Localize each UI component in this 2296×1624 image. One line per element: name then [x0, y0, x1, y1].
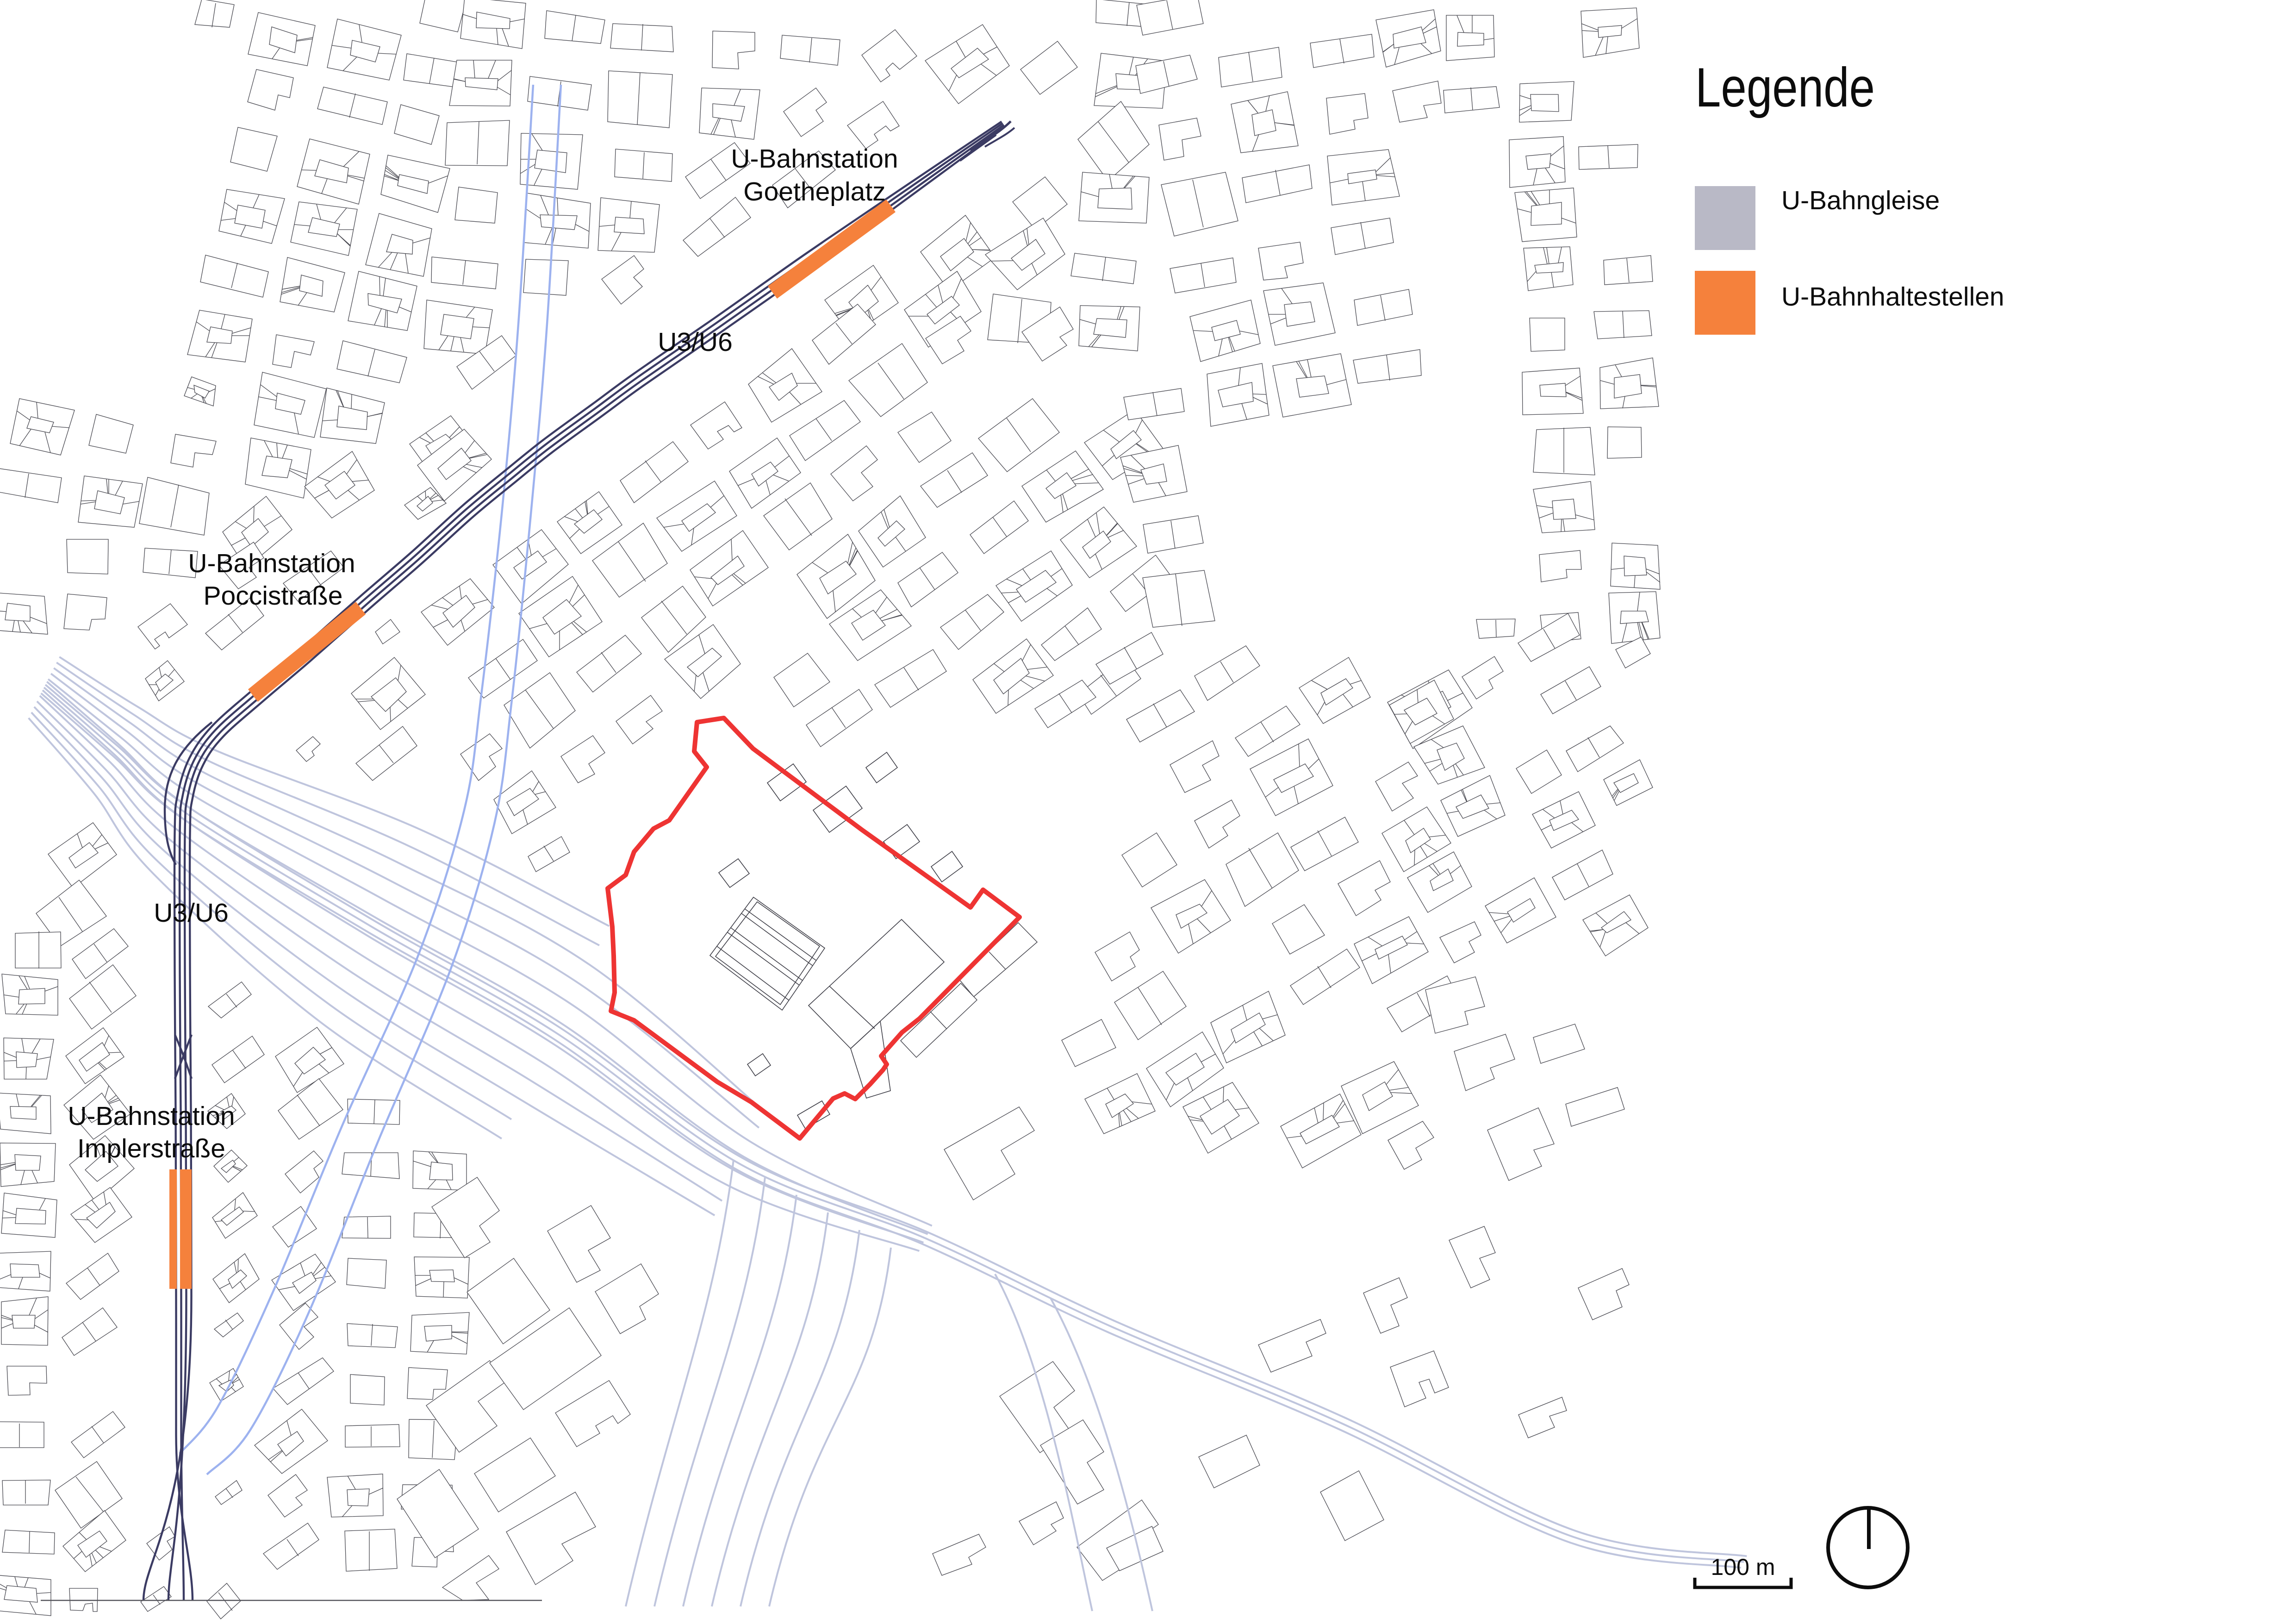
svg-text:Implerstraße: Implerstraße [77, 1134, 225, 1163]
svg-text:Goetheplatz: Goetheplatz [743, 177, 885, 206]
svg-text:U-Bahnstation: U-Bahnstation [731, 144, 898, 174]
svg-text:U-Bahnhaltestellen: U-Bahnhaltestellen [1781, 282, 2004, 312]
svg-text:U-Bahnstation: U-Bahnstation [68, 1101, 235, 1131]
svg-text:U-Bahngleise: U-Bahngleise [1781, 186, 1940, 215]
svg-text:Poccistraße: Poccistraße [204, 581, 343, 611]
svg-text:U-Bahnstation: U-Bahnstation [188, 549, 355, 578]
svg-text:U3/U6: U3/U6 [658, 327, 733, 357]
svg-text:100 m: 100 m [1711, 1554, 1775, 1580]
svg-text:U3/U6: U3/U6 [154, 898, 229, 928]
svg-text:Legende: Legende [1695, 56, 1875, 119]
